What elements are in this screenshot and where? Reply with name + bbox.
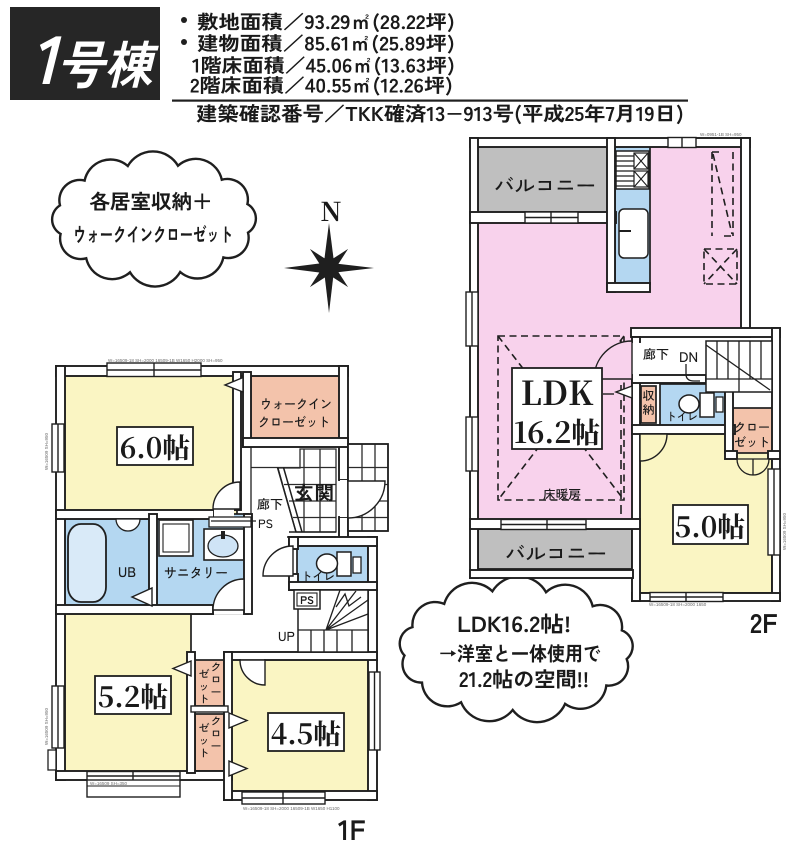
svg-text:W=16509-18 SH=2000 1650: W=16509-18 SH=2000 1650: [649, 602, 707, 607]
svg-text:W=16509-18 SH=2000 16509-1B W1: W=16509-18 SH=2000 16509-1B W1650 H2000 …: [108, 358, 223, 363]
svg-text:W=16509 SH=950: W=16509 SH=950: [44, 707, 49, 745]
svg-text:W=16509 SH=350: W=16509 SH=350: [90, 781, 128, 786]
svg-text:W=16509 SH=950: W=16509 SH=950: [782, 512, 787, 550]
svg-text:W=16509-18 SH=2000 16509-1B W1: W=16509-18 SH=2000 16509-1B W1650 H1100: [243, 806, 340, 811]
svg-text:W=16509 SH=950: W=16509 SH=950: [44, 432, 49, 470]
svg-text:W=0951-1B SH=950: W=0951-1B SH=950: [700, 132, 742, 137]
